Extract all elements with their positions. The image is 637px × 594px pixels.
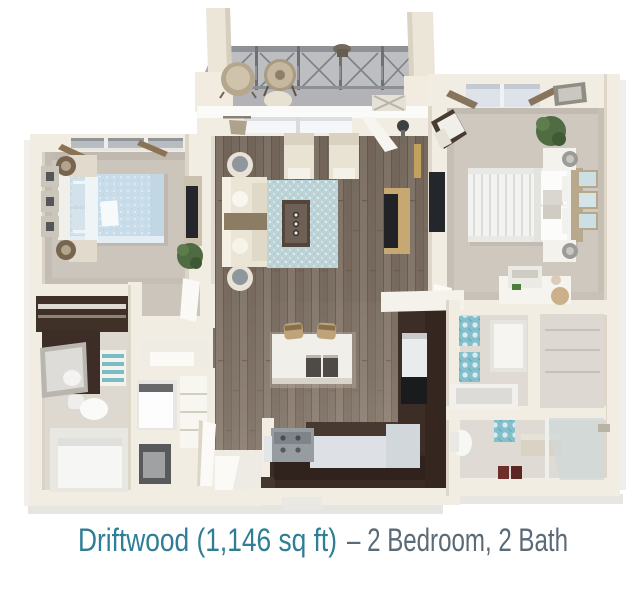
- svg-text:Driftwood (1,146 sq ft): Driftwood (1,146 sq ft): [78, 522, 337, 558]
- svg-text:– 2 Bedroom, 2 Bath: – 2 Bedroom, 2 Bath: [347, 522, 568, 558]
